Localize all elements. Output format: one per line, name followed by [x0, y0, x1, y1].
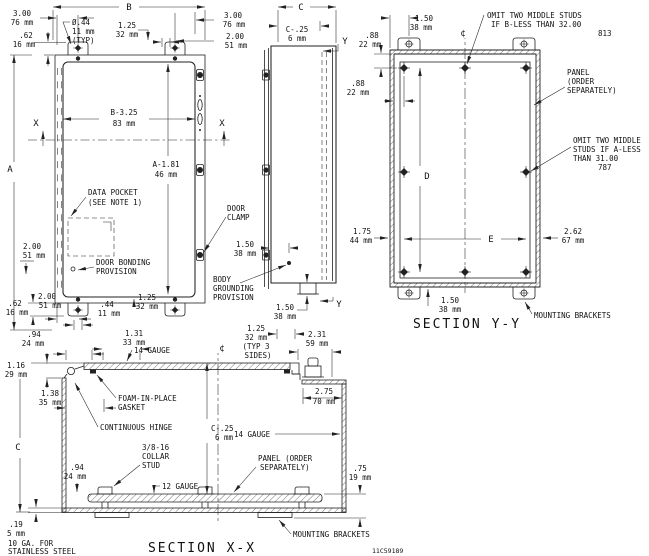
dim-bracket-rise-mm: 16 mm: [13, 40, 36, 49]
collar-stud-note-1: 3/8-16: [142, 443, 170, 452]
door-clamp-note-2: CLAMP: [227, 213, 250, 222]
bracket-bolt: [170, 43, 180, 53]
omit-studs-a-note-1: OMIT TWO MIDDLE: [573, 136, 641, 145]
collar-stud-note-3: STUD: [142, 461, 161, 470]
dim-bottom-hole-in: .44: [100, 300, 114, 309]
dim-stud-span-v-label: D: [424, 172, 429, 182]
data-pocket-note-1: DATA POCKET: [88, 188, 138, 197]
latch-dot: [199, 95, 201, 97]
section-mark-y-bottom: Y: [336, 300, 342, 310]
dim-panel-depth-in: C-.25: [211, 424, 234, 433]
material-note-2: STAINLESS STEEL: [8, 547, 76, 556]
dim-bottom-offset-in: 2.00: [38, 292, 57, 301]
dim-door-height-in: A-1.81: [152, 160, 179, 169]
dim-door-width-mm: 83 mm: [113, 119, 136, 128]
enclosure-drawing: B 3.00 76 mm .62 16 mm Ø.44 11 mm (TYP) …: [0, 0, 649, 556]
door-clamp-section: [305, 366, 321, 377]
omit-studs-b-note-1: OMIT TWO MIDDLE STUDS: [487, 11, 582, 20]
section-xx-caption: SECTION X-X: [148, 541, 256, 556]
dim-overall-width-label: B: [126, 3, 131, 13]
bracket-bolt: [520, 40, 529, 49]
door-bonding-note-1: DOOR BONDING: [96, 258, 151, 267]
omit-studs-b-note-2: IF B-LESS THAN 32.00: [491, 20, 582, 29]
hole-callout-dia: Ø.44: [72, 18, 91, 27]
dim-bottom-right-mm: 67 mm: [562, 236, 585, 245]
latch-slot: [198, 114, 202, 125]
dim-stud-height-in: .94: [70, 463, 84, 472]
dim-bottom-bracket-in: 1.50: [276, 303, 295, 312]
bracket-bolt: [405, 40, 414, 49]
panel-stud: [459, 266, 471, 278]
dim-stud-side-mm: 22 mm: [347, 88, 370, 97]
data-pocket-note-2: (SEE NOTE 1): [88, 198, 142, 207]
dim-flange-right-in: 2.75: [315, 387, 333, 396]
panel-gauge-note: 12 GAUGE: [162, 482, 199, 491]
body-top-flange: [302, 380, 346, 384]
foam-gasket-note-1: FOAM-IN-PLACE: [118, 394, 177, 403]
mounting-bracket-foot: [95, 513, 129, 518]
body-bottom-wall: [62, 508, 346, 513]
hinge-leaf: [75, 366, 84, 369]
dim-door-width-in: B-3.25: [110, 108, 137, 117]
dim-hinge-offset-in: .94: [27, 330, 41, 339]
bracket-bolt: [405, 289, 414, 298]
drawing-number: 11C59189: [372, 547, 403, 555]
section-yy: ¢ .88 22 mm 1.50 38 mm OMIT TWO MIDDLE S…: [347, 11, 642, 332]
dim-clamp-mm: 59 mm: [306, 339, 329, 348]
omit-studs-a-note-3: THAN 31.00: [573, 154, 619, 163]
dim-door-height-mm: 46 mm: [155, 170, 178, 179]
dim-clamp-offset-in: 1.50: [236, 240, 255, 249]
side-view: C C-.25 6 mm Y 1.50 38 mm BODY GROUNDING…: [213, 3, 348, 321]
engineering-drawing-page: B 3.00 76 mm .62 16 mm Ø.44 11 mm (TYP) …: [0, 0, 649, 556]
side-view-geometry: [263, 46, 337, 294]
gasket-section: [90, 370, 96, 374]
panel-note-2: (ORDER: [567, 77, 595, 86]
dim-top-right2-mm: 51 mm: [225, 41, 248, 50]
dim-slot-mm: 32 mm: [116, 30, 139, 39]
dim-wall-in: .19: [9, 520, 23, 529]
dim-wall-mm: 5 mm: [7, 529, 26, 538]
dim-hinge-width-in: 1.38: [41, 389, 60, 398]
mounting-bracket-foot: [300, 283, 316, 294]
flange-stud: [76, 297, 80, 301]
gasket-section: [284, 370, 290, 374]
door-clamp-note-1: DOOR: [227, 204, 246, 213]
dim-bottom-right-in: 2.62: [564, 227, 582, 236]
dim-bracket-bottom-mm: 38 mm: [439, 305, 462, 314]
section-mark-x-left: X: [33, 119, 39, 129]
dim-slot-in: 1.25: [118, 21, 136, 30]
dim-clamp-offset-mm: 38 mm: [234, 249, 257, 258]
door-bonding-stud: [71, 267, 75, 271]
dim-door-rise-mm: 29 mm: [5, 370, 28, 379]
flange-stud: [76, 56, 80, 60]
dim-lip-mm: 32 mm: [245, 333, 268, 342]
latch-slot: [198, 100, 202, 111]
door-bonding-note-2: PROVISION: [96, 267, 137, 276]
dim-bracket-offset-mm: 76 mm: [11, 18, 34, 27]
door-clamp-hardware: [197, 70, 204, 261]
dim-hinge-width-mm: 35 mm: [39, 398, 62, 407]
panel-note-1: PANEL: [567, 68, 590, 77]
panel-stud: [459, 62, 471, 74]
dim-top-right1-mm: 76 mm: [223, 20, 246, 29]
hole-callout-typ: (TYP): [72, 36, 95, 45]
section-yy-caption: SECTION Y-Y: [413, 317, 521, 332]
hinge-knuckle: [67, 367, 74, 374]
dim-bottom-slot-mm: 32 mm: [136, 302, 159, 311]
continuous-hinge-note: CONTINUOUS HINGE: [100, 423, 173, 432]
dim-panel-depth-mm: 6 mm: [215, 433, 234, 442]
dim-depth-overall-label: C: [15, 443, 20, 453]
dim-bottom-hole-mm: 11 mm: [98, 309, 121, 318]
panel-note-1: PANEL (ORDER: [258, 454, 313, 463]
dim-bottom-slot-in: 1.25: [138, 293, 156, 302]
flange-stud: [173, 56, 177, 60]
hinge-leaf: [64, 374, 67, 378]
bracket-bolt: [170, 305, 180, 315]
dim-top-right1-in: 3.00: [224, 11, 243, 20]
dim-bottom-bracket-mm: 38 mm: [274, 312, 297, 321]
dim-flange-right-mm: 70 mm: [313, 397, 336, 406]
foam-gasket-note-2: GASKET: [118, 403, 146, 412]
dim-bottom-left-in: 1.75: [353, 227, 371, 236]
body-step: [292, 374, 300, 380]
dim-stud-height-mm: 24 mm: [64, 472, 87, 481]
dim-bonding-offset-mm: 51 mm: [23, 251, 46, 260]
dim-depth-minus-mm: 6 mm: [288, 34, 307, 43]
dim-lip-typ-2: SIDES): [244, 351, 271, 360]
mounting-bracket-foot: [258, 513, 292, 518]
data-pocket-mark: [103, 222, 111, 231]
dim-stud-top-mm: 22 mm: [359, 40, 382, 49]
body-grounding-note-2: GROUNDING: [213, 284, 254, 293]
bracket-bolt: [520, 289, 529, 298]
section-yy-geometry: [390, 28, 540, 299]
mounting-brackets-note: MOUNTING BRACKETS: [293, 530, 370, 539]
dim-stud-top-in: .88: [365, 31, 379, 40]
dim-depth-minus-in: C-.25: [286, 25, 309, 34]
dim-lip-in: 1.25: [247, 324, 265, 333]
panel-note-3: SEPARATELY): [567, 86, 617, 95]
section-mark-y-top: Y: [342, 37, 348, 47]
panel-note-2: SEPARATELY): [260, 463, 310, 472]
dim-clamp-in: 2.31: [308, 330, 326, 339]
body-grounding-stud: [287, 261, 291, 265]
centerline-symbol: ¢: [219, 344, 224, 354]
hole-callout-mm: 11 mm: [72, 27, 95, 36]
section-xx: ¢ .94 24 mm 1.31 33 mm 14 GAUGE 1.25 32 …: [2, 324, 403, 556]
dim-panel-standoff-mm: 19 mm: [349, 473, 372, 482]
dim-bracket-rise-in: .62: [19, 31, 33, 40]
collar-stud-note-2: COLLAR: [142, 452, 170, 461]
body-left-wall: [62, 378, 66, 512]
omit-studs-a-note-4: 787: [598, 163, 612, 172]
section-mark-x-right: X: [219, 119, 225, 129]
dim-panel-standoff-in: .75: [353, 464, 367, 473]
data-pocket-outline: [68, 218, 114, 256]
dim-stud-span-h-label: E: [488, 235, 493, 245]
body-right-wall: [342, 384, 346, 512]
door-clamp-section: [308, 358, 318, 366]
dim-flange-in: 1.31: [125, 329, 143, 338]
body-grounding-note-3: PROVISION: [213, 293, 254, 302]
omit-studs-b-note-3: 813: [598, 29, 612, 38]
mounting-brackets-note: MOUNTING BRACKETS: [534, 311, 611, 320]
dim-top-right2-in: 2.00: [226, 32, 245, 41]
section-xx-dimensions: [16, 329, 366, 534]
dim-door-rise-in: 1.16: [7, 361, 26, 370]
dim-depth-label: C: [298, 3, 303, 13]
dim-bottom-offset-mm: 51 mm: [39, 301, 62, 310]
dim-overall-height-label: A: [7, 165, 13, 175]
dim-bracket-mm: 38 mm: [410, 23, 433, 32]
door-section: [84, 363, 290, 370]
bracket-bolt: [73, 305, 83, 315]
dim-bottom-left-mm: 44 mm: [350, 236, 373, 245]
dim-bonding-offset-in: 2.00: [23, 242, 42, 251]
door-flange-channel: [290, 363, 299, 374]
body-gauge-note: 14 GAUGE: [234, 430, 271, 439]
dim-bracket-in: 1.50: [415, 14, 434, 23]
front-view-dimensions: [10, 7, 226, 330]
door-gauge-note: 14 GAUGE: [134, 346, 171, 355]
dim-bracket-offset-in: 3.00: [13, 9, 32, 18]
omit-studs-a-note-2: STUDS IF A-LESS: [573, 145, 641, 154]
dim-stud-side-in: .88: [351, 79, 365, 88]
latch-dot: [199, 129, 201, 131]
flange-stud: [173, 297, 177, 301]
dim-bracket-bottom-in: 1.50: [441, 296, 460, 305]
centerline-symbol: ¢: [460, 29, 465, 39]
dim-hinge-offset-mm: 24 mm: [22, 339, 45, 348]
body-grounding-note-1: BODY: [213, 275, 232, 284]
dim-bottom-rise-mm: 16 mm: [6, 308, 29, 317]
panel-section: [88, 494, 322, 502]
dim-lip-typ-1: (TYP 3: [242, 342, 269, 351]
dim-bottom-rise-in: .62: [8, 299, 22, 308]
